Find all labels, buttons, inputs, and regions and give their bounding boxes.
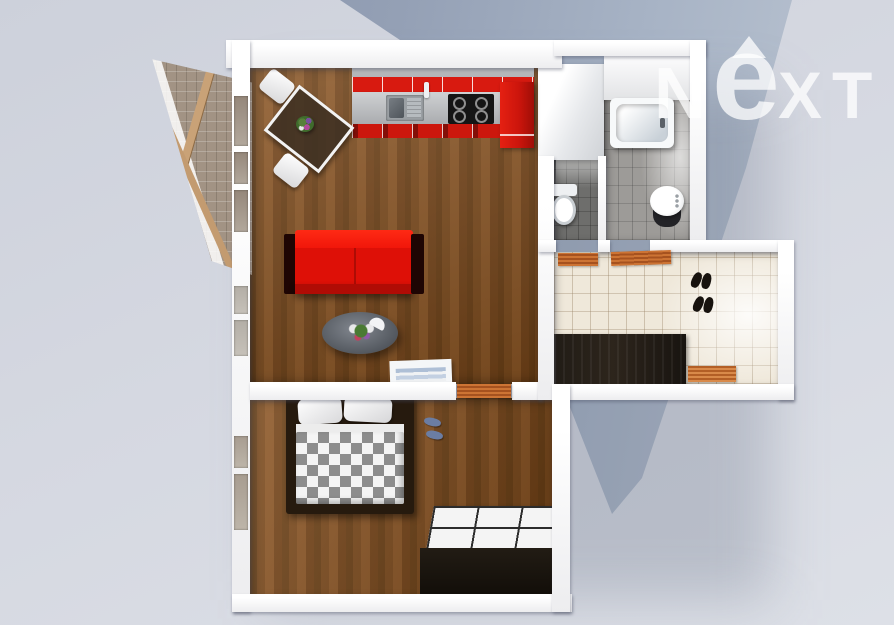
wardrobe-front	[420, 548, 568, 598]
pillow	[297, 396, 343, 425]
logo-letter-n: N	[654, 58, 706, 130]
sofa-backrest	[295, 230, 413, 250]
wall-hallway-top	[598, 240, 610, 252]
double-bed	[286, 394, 414, 514]
sink-drainer	[407, 98, 421, 118]
wall-top	[226, 40, 562, 68]
washbasin-faucet-holes	[675, 194, 679, 208]
toilet	[550, 184, 578, 228]
wall-hallway-right	[778, 240, 794, 400]
fridge-unit	[500, 82, 534, 148]
bedroom-wardrobe	[420, 506, 568, 598]
checkered-blanket	[296, 432, 404, 504]
sofa-armrest	[411, 234, 424, 294]
next-reality-watermark: N e X T	[650, 14, 894, 124]
window-pane	[234, 152, 248, 184]
wall-wc-bathroom	[598, 156, 606, 242]
doormat-wc	[558, 253, 598, 266]
window-pane	[234, 190, 248, 232]
kitchen-upper-cabinet-top	[352, 68, 534, 77]
window-pane	[234, 436, 248, 468]
window-pane	[234, 474, 248, 530]
washbasin	[650, 186, 684, 228]
floorplan-render: N e X T	[0, 0, 894, 625]
red-sofa	[284, 230, 424, 294]
blue-slippers	[424, 418, 446, 442]
window-pane	[234, 96, 248, 146]
wall-hallway-top	[538, 240, 556, 252]
wall-living-right	[538, 156, 554, 400]
shoe-pair	[692, 272, 716, 290]
wall-bedroom-right	[552, 384, 570, 612]
wall-hallway-bottom	[554, 384, 794, 400]
kitchen-sink	[386, 95, 424, 121]
wall-living-bedroom	[250, 382, 456, 400]
logo-letter-t: T	[832, 62, 872, 128]
kitchen-faucet	[424, 82, 429, 98]
window-pane	[234, 320, 248, 356]
coffee-table	[322, 312, 398, 354]
hallway-wardrobe	[554, 334, 686, 384]
wardrobe-top-panels	[426, 506, 566, 550]
wall-bottom	[232, 594, 572, 612]
doormat-entry	[688, 366, 736, 382]
flower-vase	[296, 116, 314, 132]
sofa-seat	[295, 248, 413, 286]
logo-letter-e: e	[712, 16, 780, 138]
dining-set	[258, 74, 362, 186]
logo-letter-x: X	[778, 62, 822, 128]
sink-basin	[389, 98, 404, 118]
balcony-wood-plank	[141, 40, 222, 299]
window-pane	[234, 286, 248, 314]
cooktop	[448, 94, 494, 124]
doormat-bathroom	[611, 250, 671, 266]
closet-wall-block	[538, 64, 604, 160]
doormat-living-bedroom	[457, 384, 511, 398]
sofa-front	[295, 284, 413, 294]
shoe-pair	[694, 296, 718, 314]
toilet-bowl	[552, 195, 576, 225]
